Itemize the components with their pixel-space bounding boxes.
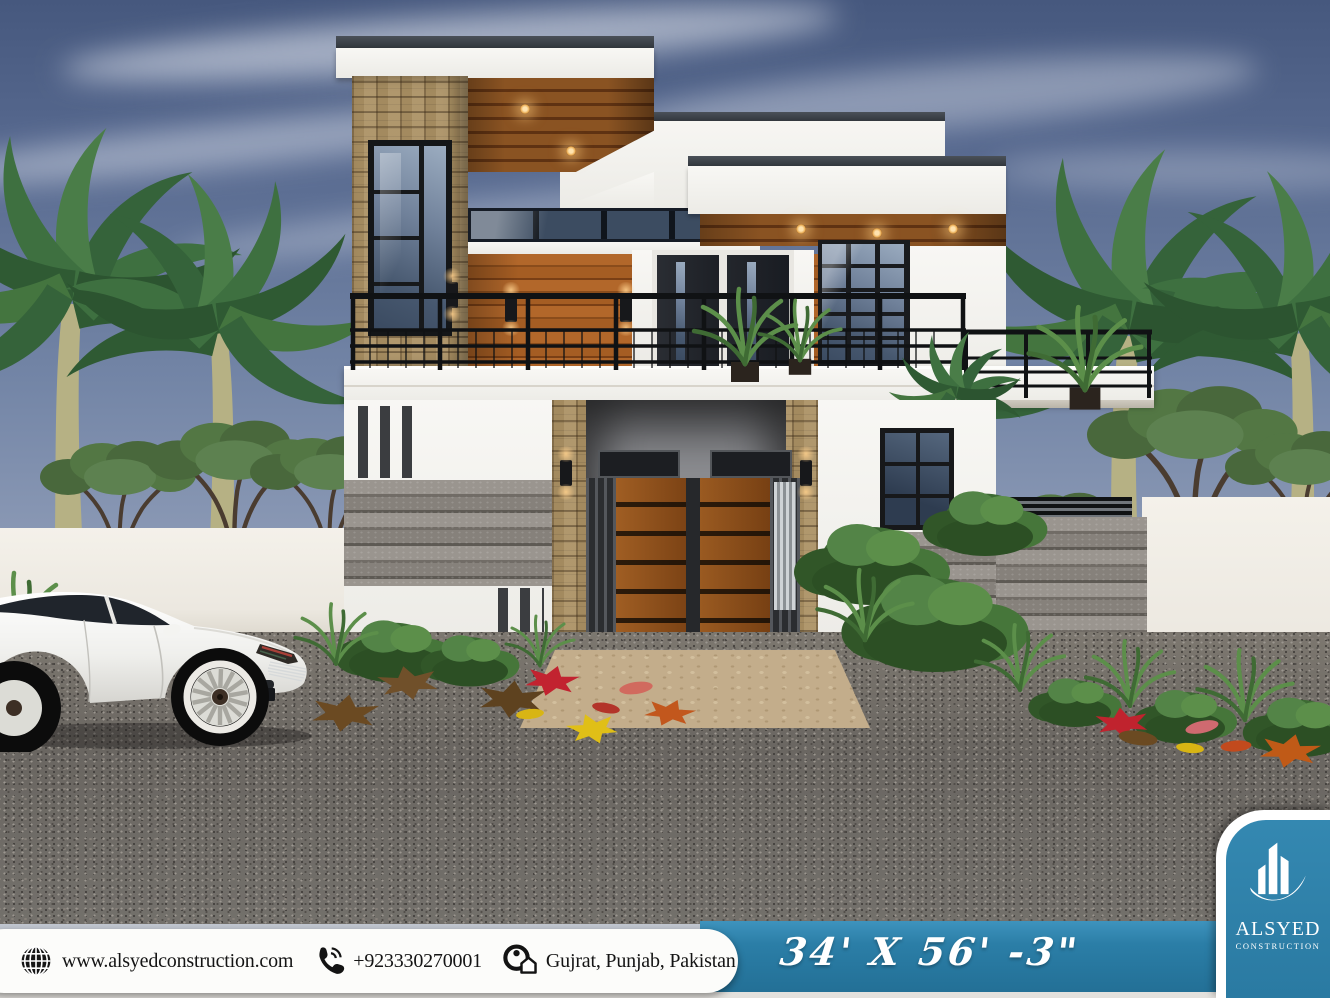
fallen-leaf [516,708,545,721]
brand-name: ALSYED [1236,918,1321,941]
globe-icon [18,943,54,979]
location-item[interactable]: Gujrat, Punjab, Pakistan [500,942,736,980]
fallen-leaf [1220,739,1251,752]
website-text: www.alsyedconstruction.com [62,950,293,973]
website-item[interactable]: www.alsyedconstruction.com [18,943,293,979]
fallen-leaf [308,692,381,734]
map-pin-house-icon [500,942,538,980]
phone-text: +923330270001 [353,950,482,973]
location-text: Gujrat, Punjab, Pakistan [546,950,736,973]
fallen-leaf [1176,742,1205,755]
fallen-leaf [375,663,442,702]
fallen-leaf [1255,731,1324,771]
architectural-render-poster: 34' X 56' -3" www.alsyedconstruction.com… [0,0,1330,998]
fallen-leaf [619,680,654,697]
fallen-leaf [1184,718,1219,737]
footer-contact-bar: www.alsyedconstruction.com +923330270001… [0,929,738,993]
phone-handset-icon [311,944,345,978]
brand-badge: ALSYED CONSTRUCTION [1216,810,1330,998]
plot-dimensions: 34' X 56' -3" [717,929,1143,974]
building-skyline-icon [1245,834,1311,916]
fallen-leaf [562,710,622,749]
phone-item[interactable]: +923330270001 [311,944,482,978]
leaves-layer [0,0,1330,998]
fallen-leaf [639,695,700,730]
brand-subtitle: CONSTRUCTION [1236,941,1321,951]
fallen-leaf [591,701,620,716]
